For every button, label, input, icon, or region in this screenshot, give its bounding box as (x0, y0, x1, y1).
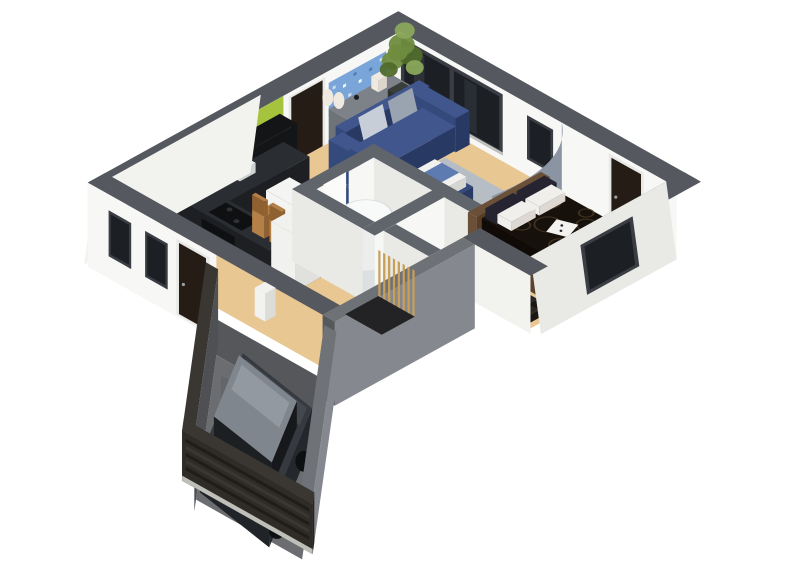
pedestal (255, 282, 276, 322)
sideboard-decor (354, 95, 359, 100)
stair-slat (412, 269, 414, 316)
throw-pattern (560, 230, 563, 232)
stool-back-side (264, 200, 268, 217)
plant-foliage (380, 62, 398, 77)
stair-slat (408, 267, 410, 314)
burner (233, 219, 239, 223)
lamp-shade (322, 89, 333, 106)
door-handle (182, 283, 185, 286)
stair-slat (383, 253, 385, 300)
stair-slat (378, 250, 380, 297)
pedestal-side (265, 288, 275, 322)
throw-pattern (560, 224, 563, 226)
stair-slat (393, 258, 395, 305)
house (84, 11, 701, 559)
plant-foliage (388, 44, 408, 60)
stair-slat (398, 261, 400, 308)
floor-plan-render (0, 0, 800, 566)
floor-plan-page (0, 0, 800, 566)
stair-slat (388, 256, 390, 303)
lamp-shade (333, 92, 344, 109)
pedestal-front (255, 288, 266, 322)
burner (226, 207, 232, 211)
plant-foliage (406, 60, 424, 75)
door-handle (614, 196, 617, 199)
plant-foliage (395, 22, 415, 38)
stair-slat (403, 264, 405, 311)
